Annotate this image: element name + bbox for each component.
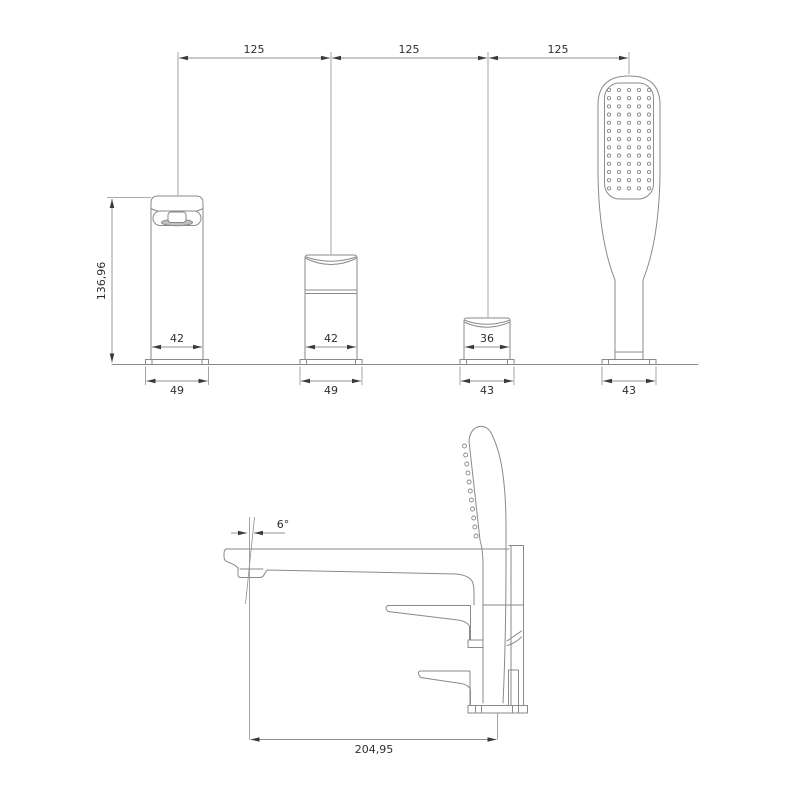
dim-label-base-width-4: 43: [622, 384, 636, 397]
dim-label-base-width-2: 49: [324, 384, 338, 397]
technical-drawing-page: 125 125 125 136,96: [0, 0, 800, 800]
dim-label-span-2: 125: [399, 43, 420, 56]
dim-label-reach: 204,95: [355, 743, 394, 756]
center-lines: [178, 52, 629, 317]
angle-dimension: 6°: [231, 517, 289, 740]
dim-label-body-width-1: 42: [170, 332, 184, 345]
spray-dots-side: [463, 444, 479, 538]
dim-label-body-width-2: 42: [324, 332, 338, 345]
spout-side: [224, 549, 509, 605]
dim-label-height: 136,96: [95, 262, 108, 301]
length-dimension: 204,95: [251, 740, 497, 757]
dim-label-span-3: 125: [548, 43, 569, 56]
front-view: 125 125 125 136,96: [95, 43, 698, 397]
dim-label-angle: 6°: [277, 518, 290, 531]
spout-front: [300, 255, 362, 365]
dim-label-base-width-1: 49: [170, 384, 184, 397]
dim-label-span-1: 125: [244, 43, 265, 56]
base-plate-side: [468, 706, 528, 740]
hand-shower-front: [598, 76, 660, 365]
height-dimension: 136,96: [95, 198, 151, 363]
faucet-technical-drawing: 125 125 125 136,96: [0, 0, 800, 800]
base-width-dimensions: 49 49 43 43: [146, 367, 657, 398]
spacing-dimension: 125 125 125: [179, 43, 628, 58]
dim-label-body-width-3: 36: [480, 332, 494, 345]
side-view: 6°: [224, 426, 528, 756]
hand-shower-side: [463, 426, 507, 703]
body-width-dimensions: 42 42 36: [152, 332, 509, 347]
dim-label-base-width-3: 43: [480, 384, 494, 397]
lever-upper-side: [386, 606, 483, 648]
